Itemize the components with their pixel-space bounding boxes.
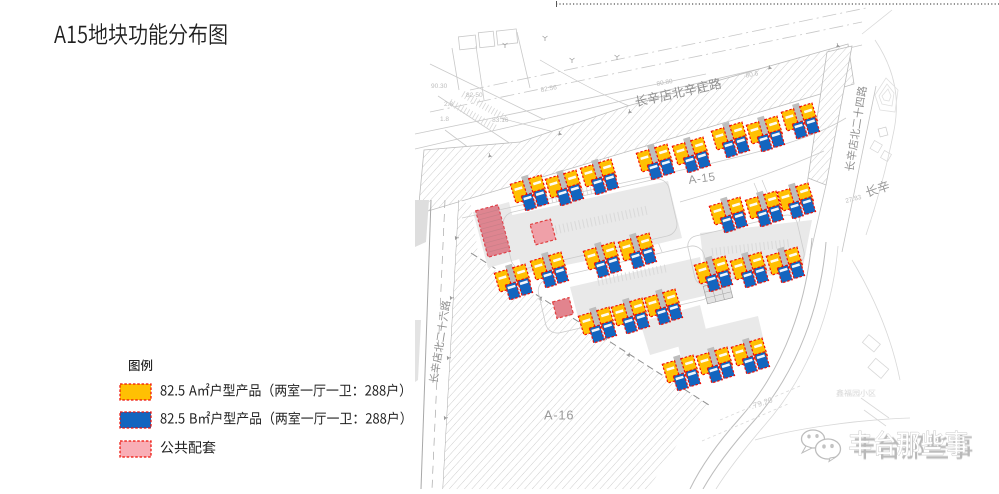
- svg-text:2.8: 2.8: [444, 101, 453, 108]
- svg-text:90.30: 90.30: [431, 83, 448, 90]
- svg-text:1.8: 1.8: [440, 116, 449, 123]
- svg-text:·83.16: ·83.16: [490, 117, 509, 124]
- svg-text:A-16: A-16: [544, 408, 574, 423]
- svg-text:82-50: 82-50: [466, 92, 483, 99]
